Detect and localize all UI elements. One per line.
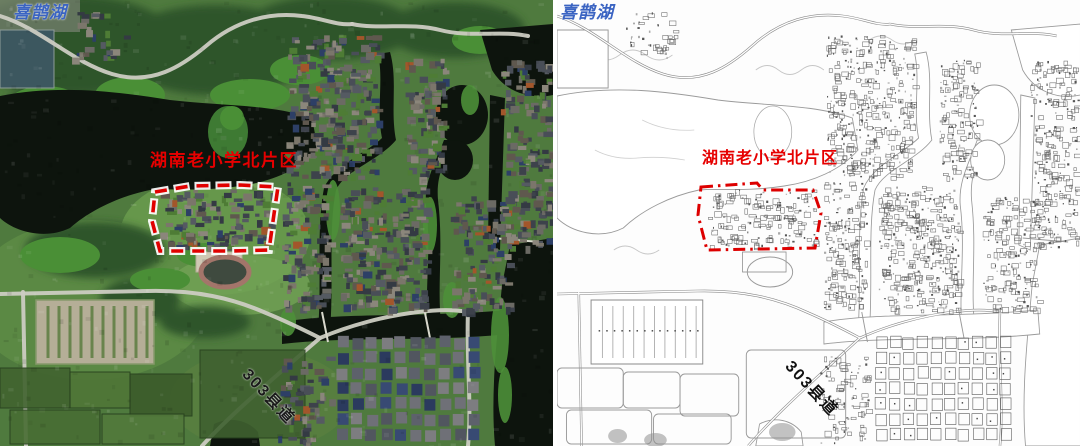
sketch-map-image <box>557 0 1080 446</box>
map-comparison-figure: 喜鹊湖 湖南老小学北片区 303县道 喜鹊湖 湖南老小学北片区 303县道 <box>0 0 1080 446</box>
sketch-map-panel: 喜鹊湖 湖南老小学北片区 303县道 <box>557 0 1080 446</box>
satellite-map-panel: 喜鹊湖 湖南老小学北片区 303县道 <box>0 0 553 446</box>
satellite-map-image <box>0 0 553 446</box>
